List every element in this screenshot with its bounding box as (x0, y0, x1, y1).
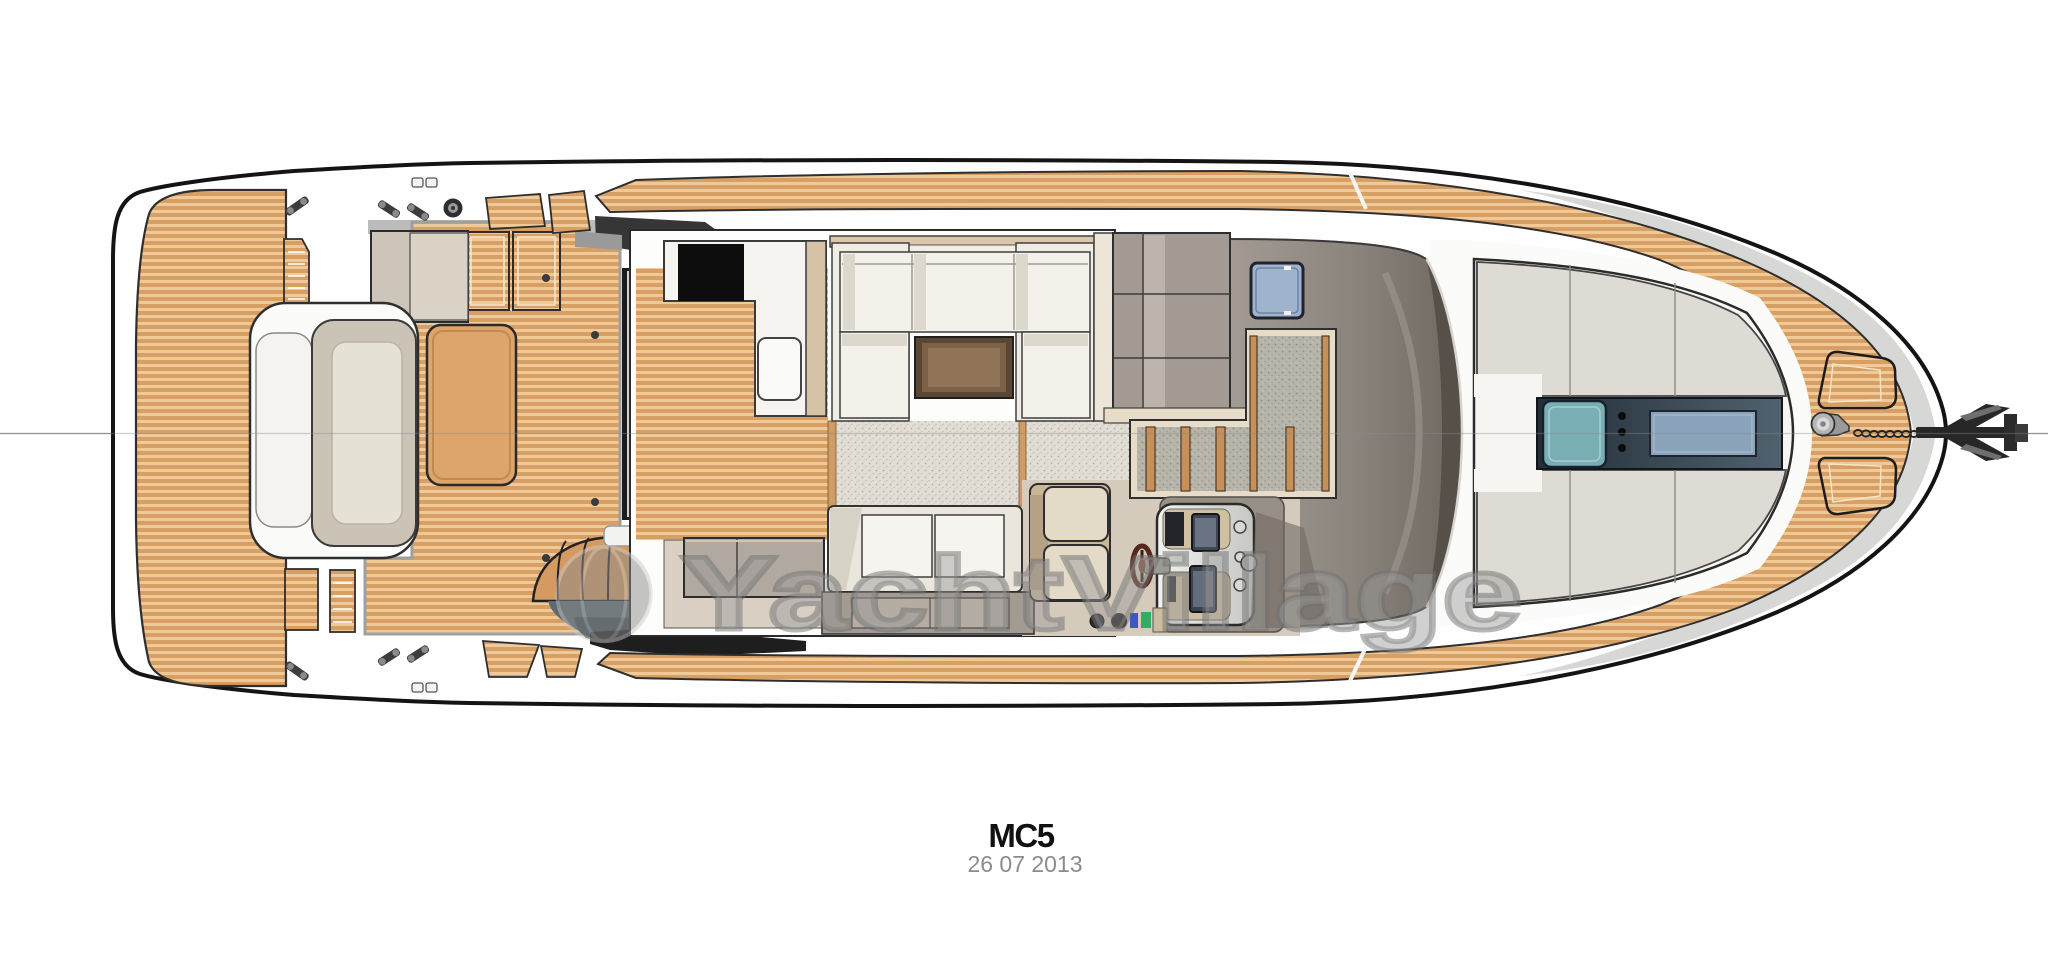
svg-text:MC5: MC5 (988, 817, 1054, 854)
svg-text:26 07 2013: 26 07 2013 (967, 851, 1082, 877)
svg-text:YachtVillage: YachtVillage (681, 536, 1522, 652)
